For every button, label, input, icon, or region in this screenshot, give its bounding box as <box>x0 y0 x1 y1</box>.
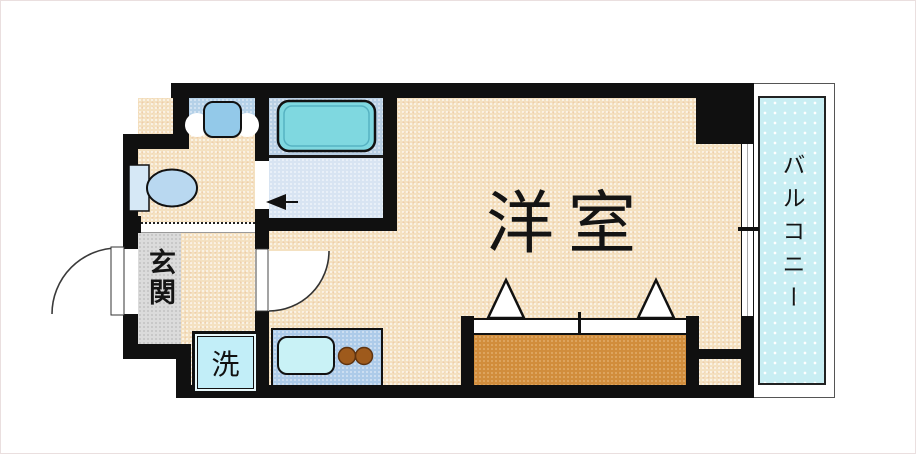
gas-burner-icon <box>339 348 356 365</box>
main-room-label: 洋室 <box>473 173 663 261</box>
fixtures-overlay <box>1 1 916 454</box>
closet-door-triangle <box>638 280 674 318</box>
entrance-door-arc <box>52 248 118 314</box>
room-door-leaf <box>256 249 268 311</box>
room-door-arc <box>269 251 329 311</box>
toilet-icon <box>147 170 197 207</box>
bathroom-door-arrow <box>266 194 286 210</box>
floor-plan: バルコニー 洗 <box>0 0 916 454</box>
entrance-label: 玄関 <box>146 248 173 308</box>
kitchen-sink-icon <box>278 337 334 374</box>
washbasin-icon <box>204 102 241 137</box>
gas-burner-icon <box>356 348 373 365</box>
bathtub-icon <box>278 101 375 151</box>
closet-door-triangle <box>488 280 524 318</box>
entrance-door-leaf <box>111 247 124 315</box>
